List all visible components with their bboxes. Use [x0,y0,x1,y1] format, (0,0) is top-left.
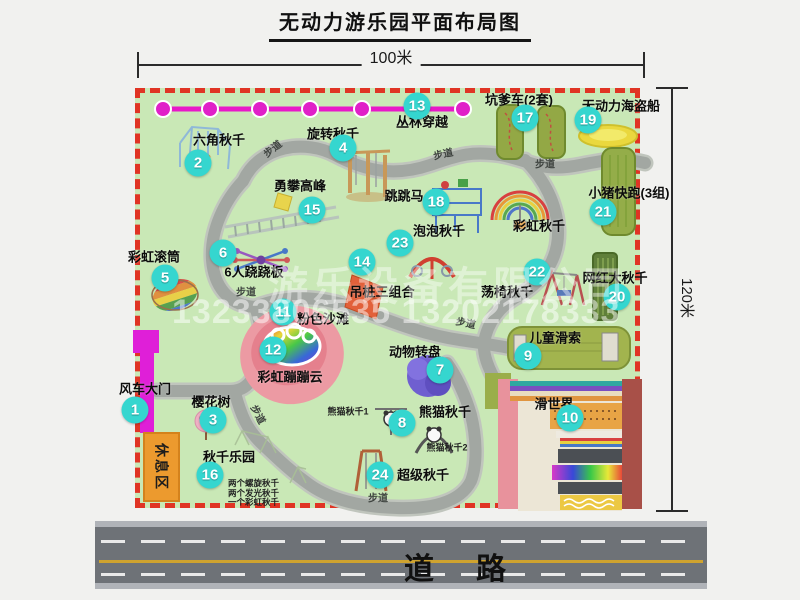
attraction-badge-12: 12 [260,337,287,364]
map-annotations: 风车大门1六角秋千2樱花树3旋转秋千4彩虹滚筒56人跷跷板6动物转盘7熊猫秋千8… [0,0,800,600]
panda-swing-sub-label: 熊猫秋千2 [426,441,467,454]
attraction-label-24: 超级秋千 [397,465,449,484]
attraction-label-rainbow-swing: 彩虹秋千 [513,216,565,235]
attraction-label-22: 荡椅秋千 [481,282,533,301]
attraction-label-23: 泡泡秋千 [413,221,465,240]
attraction-badge-5: 5 [152,265,179,292]
park-layout-plan: 无动力游乐园平面布局图 100米 120米 [0,0,800,600]
walkway-label: 步道 [535,156,555,171]
attraction-label-6: 6人跷跷板 [224,262,283,281]
attraction-badge-22: 22 [524,259,551,286]
attraction-badge-7: 7 [427,357,454,384]
attraction-badge-3: 3 [200,407,227,434]
swing-park-note: 一个彩虹秋千 [228,496,279,508]
rest-area-label: 休息区 [152,443,172,491]
walkway-label: 步道 [455,313,478,332]
attraction-badge-14: 14 [349,249,376,276]
attraction-badge-17: 17 [512,105,539,132]
walkway-label: 步道 [236,284,256,299]
attraction-label-1: 风车大门 [119,379,171,398]
attraction-label-15: 勇攀高峰 [274,176,326,195]
road: 道路 [95,521,707,589]
attraction-badge-4: 4 [330,135,357,162]
attraction-badge-10: 10 [557,405,584,432]
attraction-badge-11: 11 [270,299,297,326]
walkway-label: 步道 [248,402,271,427]
attraction-badge-15: 15 [299,197,326,224]
panda-swing-sub-label: 熊猫秋千1 [327,405,368,418]
attraction-badge-18: 18 [423,189,450,216]
attraction-label-8: 熊猫秋千 [419,402,471,421]
attraction-label-5: 彩虹滚筒 [128,247,180,266]
attraction-badge-24: 24 [367,462,394,489]
attraction-label-12: 彩虹蹦蹦云 [257,367,322,386]
attraction-label-11: 粉色沙滩 [297,309,349,328]
attraction-badge-2: 2 [185,150,212,177]
attraction-badge-6: 6 [210,240,237,267]
attraction-badge-9: 9 [515,343,542,370]
rest-area: 休息区 [143,432,180,502]
attraction-badge-8: 8 [389,410,416,437]
walkway-label: 步道 [260,136,285,160]
attraction-badge-13: 13 [404,93,431,120]
attraction-badge-1: 1 [122,397,149,424]
attraction-label-2: 六角秋千 [193,130,245,149]
attraction-badge-20: 20 [604,284,631,311]
road-lane-line [101,540,701,543]
attraction-label-18: 跳跳马 [384,186,423,205]
attraction-label-14: 吊桩三组合 [349,282,414,301]
attraction-badge-21: 21 [590,199,617,226]
road-label: 道路 [362,544,548,588]
attraction-badge-16: 16 [197,462,224,489]
walkway-label: 步道 [368,490,388,505]
attraction-badge-19: 19 [575,107,602,134]
walkway-label: 步道 [432,144,455,163]
attraction-label-9: 儿童滑索 [529,328,581,347]
attraction-badge-23: 23 [387,230,414,257]
